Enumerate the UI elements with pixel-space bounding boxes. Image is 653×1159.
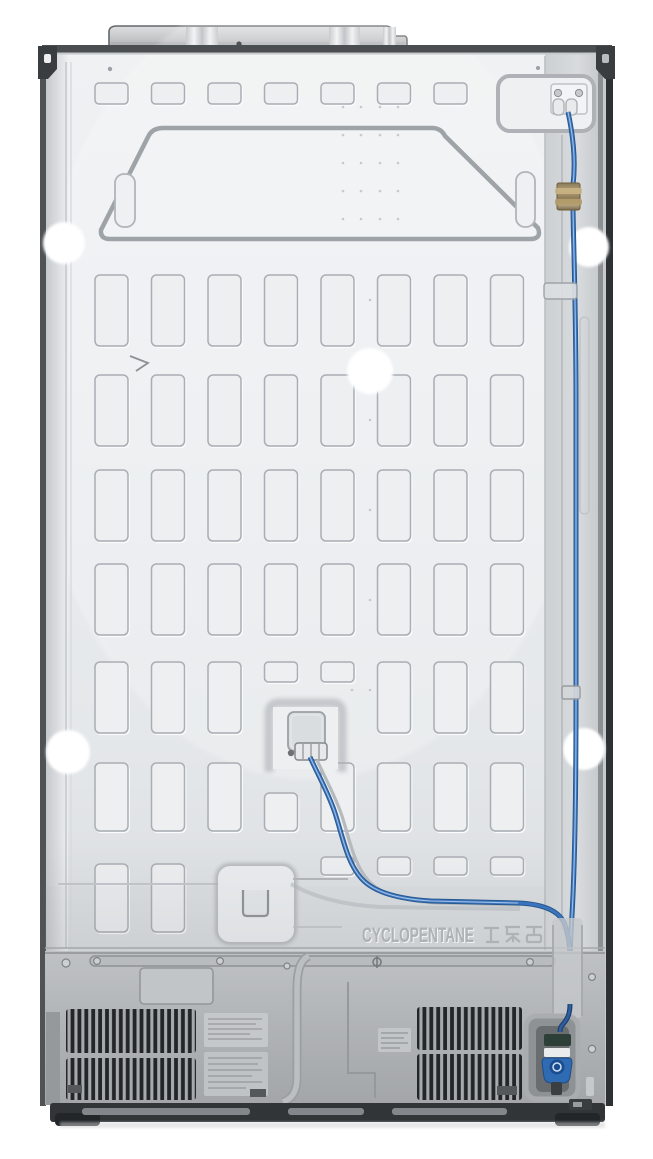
svg-text:CYCLOPENTANE: CYCLOPENTANE bbox=[362, 924, 474, 947]
